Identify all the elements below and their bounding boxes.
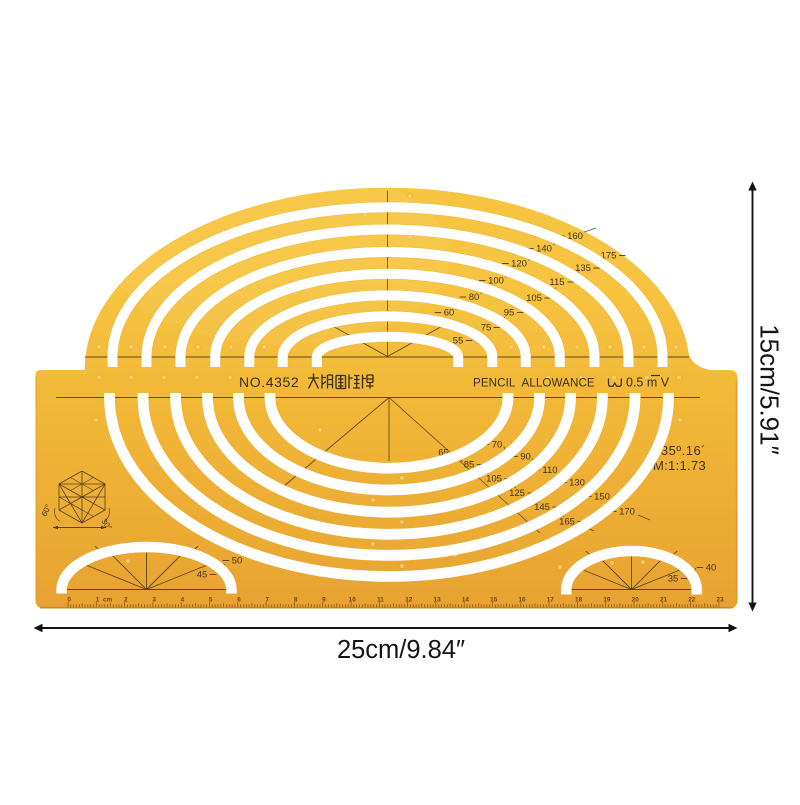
svg-text:95: 95 [504,307,515,318]
svg-text:16: 16 [518,596,526,603]
svg-text:19: 19 [603,596,611,603]
svg-text:115: 115 [549,277,564,288]
svg-text:11: 11 [377,596,384,603]
svg-text:145: 145 [534,502,550,513]
svg-text:0.5 m V: 0.5 m V [626,376,670,390]
svg-text:75: 75 [481,322,492,333]
svg-text:7: 7 [266,596,270,603]
svg-text:25cm/9.84″: 25cm/9.84″ [337,636,465,664]
svg-text:5: 5 [209,596,213,603]
svg-text:12: 12 [405,596,413,603]
svg-text:125: 125 [509,488,525,499]
svg-text:PENCIL ALLOWANCE: PENCIL ALLOWANCE [473,377,595,390]
svg-text:17: 17 [547,596,555,603]
svg-text:40: 40 [706,562,717,573]
svg-text:21: 21 [660,596,668,603]
svg-text:18: 18 [575,596,583,603]
svg-text:70: 70 [492,439,503,450]
svg-text:90: 90 [520,451,531,462]
svg-text:6: 6 [237,596,241,603]
svg-text:22: 22 [688,596,696,603]
svg-text:23: 23 [717,596,725,603]
svg-text:2: 2 [124,596,128,603]
svg-text:130: 130 [569,477,585,488]
svg-text:20: 20 [632,596,640,603]
svg-text:150: 150 [594,491,610,502]
svg-text:110: 110 [542,465,557,476]
svg-text:60: 60 [444,307,455,318]
svg-text:1: 1 [96,596,100,603]
svg-text:80: 80 [469,292,480,303]
svg-text:NO.4352: NO.4352 [239,374,299,390]
svg-text:cm: cm [103,596,113,603]
svg-text:170: 170 [619,506,635,517]
svg-text:35: 35 [668,573,679,584]
svg-text:10: 10 [349,596,357,603]
svg-text:3: 3 [152,596,156,603]
svg-text:0: 0 [67,596,71,603]
svg-text:35º.16´: 35º.16´ [661,443,706,458]
svg-text:105: 105 [526,293,542,304]
svg-text:50: 50 [232,555,243,566]
svg-text:45: 45 [197,569,208,580]
svg-text:9: 9 [322,596,326,603]
svg-text:14: 14 [462,596,470,603]
svg-text:15cm/5.91″: 15cm/5.91″ [755,324,785,455]
svg-text:M:1:1.73: M:1:1.73 [653,458,706,473]
svg-text:8: 8 [294,596,298,603]
svg-text:4: 4 [181,596,185,603]
svg-text:15: 15 [490,596,498,603]
svg-text:13: 13 [434,596,442,603]
